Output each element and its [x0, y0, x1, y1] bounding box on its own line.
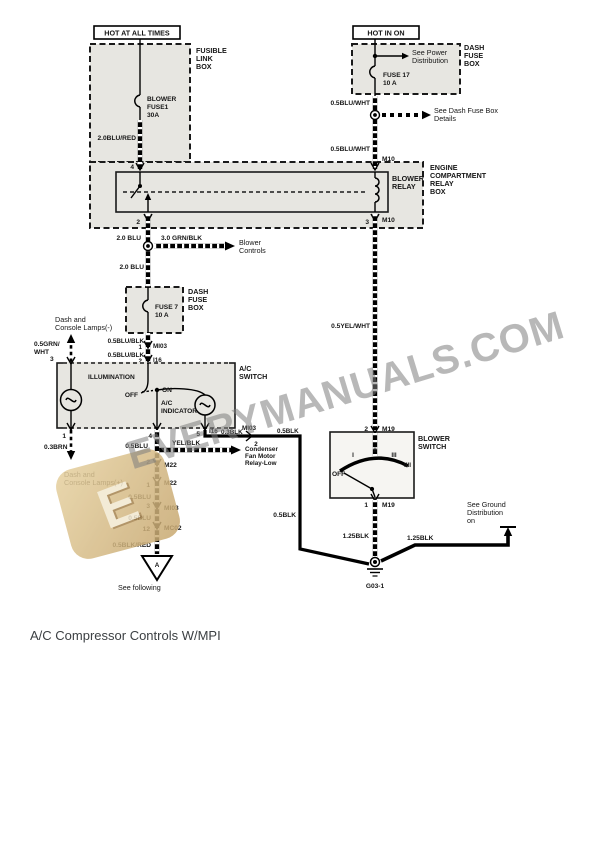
- wire-label-blu-b: 0.5BLU: [128, 494, 151, 501]
- wiring-diagram-page: HOT AT ALL TIMES HOT IN ON FUSIBLE LINK …: [0, 0, 612, 866]
- diagram-caption: A/C Compressor Controls W/MPI: [30, 628, 221, 643]
- svg-text:RELAY: RELAY: [392, 182, 416, 191]
- conn-m22-a: M22: [164, 462, 177, 469]
- see-following-note: See following: [118, 583, 161, 592]
- conn-i16-bottom: I16: [209, 428, 218, 435]
- wire-label-blk03: 0.3BLK: [221, 429, 243, 436]
- blower-pos-1: I: [352, 452, 354, 459]
- wire-label-blk05-a: 0.5BLK: [277, 428, 299, 435]
- pin-m22-a: 2: [146, 459, 150, 466]
- pin-mc02: 12: [143, 526, 151, 533]
- conn-mi03-top: MI03: [153, 343, 167, 350]
- wire-label-125blk-right: 1.25BLK: [407, 535, 434, 542]
- svg-text:BOX: BOX: [188, 303, 204, 312]
- pin-acsw-illum-out: 1: [62, 433, 66, 440]
- illumination-label: ILLUMINATION: [88, 374, 135, 381]
- blower-off-label: OFF: [332, 471, 345, 478]
- wire-label-blu-red: 2.0BLU/RED: [98, 135, 137, 142]
- svg-text:10 A: 10 A: [383, 80, 397, 87]
- lamps-plus-arrow: [67, 451, 75, 460]
- wire-label-brn: 0.3BRN: [44, 444, 68, 451]
- wire-label-yel-wht: 0.5YEL/WHT: [331, 323, 370, 330]
- conn-mi03-mid: MI03: [164, 505, 179, 512]
- svg-text:SWITCH: SWITCH: [418, 442, 446, 451]
- hot-at-all-times-header: HOT AT ALL TIMES: [94, 26, 180, 39]
- blower-pos-3: III: [391, 452, 396, 459]
- pin-acsw-illum-in: 3: [50, 356, 54, 363]
- fuse17-label: FUSE 17: [383, 72, 410, 79]
- wire-label-20blu-lower: 2.0 BLU: [119, 264, 144, 271]
- svg-text:BOX: BOX: [464, 59, 480, 68]
- svg-text:10 A: 10 A: [155, 312, 169, 319]
- conn-mi03-cond: MI03: [242, 425, 256, 432]
- wire-label-blu-wht-lower: 0.5BLU/WHT: [330, 146, 370, 153]
- svg-text:Details: Details: [434, 114, 456, 123]
- relay-pin3: 3: [365, 219, 369, 226]
- pin-acsw-sw-out: 4: [148, 433, 152, 440]
- wire-label-125blk-left: 1.25BLK: [343, 533, 370, 540]
- wire-label-grn-wht: 0.5GRN/: [34, 341, 60, 348]
- svg-text:Console Lamps(-): Console Lamps(-): [55, 323, 112, 332]
- pin-blower-in: 2: [364, 426, 368, 433]
- ac-off-label: OFF: [125, 392, 138, 399]
- conn-mc02: MC02: [164, 525, 182, 532]
- ref-a-label: A: [155, 562, 160, 569]
- see-ground-arrow: [504, 527, 512, 536]
- blower-pos-2: II: [373, 447, 377, 454]
- wire-label-blu-c: 0.5BLU: [128, 515, 151, 522]
- wiring-diagram: HOT AT ALL TIMES HOT IN ON FUSIBLE LINK …: [0, 0, 612, 866]
- wire-label-yel-blk: YEL/BLK: [172, 440, 200, 447]
- svg-text:Relay-Low: Relay-Low: [245, 460, 277, 467]
- svg-text:SWITCH: SWITCH: [239, 372, 267, 381]
- relay-m10-bot: M10: [382, 217, 395, 224]
- conn-m22-b: M22: [164, 480, 177, 487]
- svg-text:BOX: BOX: [430, 187, 446, 196]
- svg-text:Controls: Controls: [239, 246, 266, 255]
- hot-in-on-label: HOT IN ON: [367, 29, 404, 38]
- svg-text:Distribution: Distribution: [412, 56, 448, 65]
- svg-text:BOX: BOX: [196, 62, 212, 71]
- hot-at-all-times-label: HOT AT ALL TIMES: [104, 29, 170, 38]
- fuse7-label: FUSE 7: [155, 304, 178, 311]
- svg-text:30A: 30A: [147, 112, 159, 119]
- pin-mi03-mid: 3: [146, 503, 150, 510]
- wire-label-grn-blk: 3.0 GRN/BLK: [161, 235, 202, 242]
- wire-label-blk05-b: 0.5BLK: [273, 512, 296, 519]
- ac-indicator-label: A/C: [161, 400, 173, 407]
- ac-on-label: ON: [162, 387, 172, 394]
- blower-fuse-label: BLOWER: [147, 96, 177, 103]
- svg-text:FUSE1: FUSE1: [147, 104, 169, 111]
- svg-text:WHT: WHT: [34, 349, 49, 356]
- conn-m19-top: M19: [382, 426, 395, 433]
- blower-pos-4: IIII: [404, 462, 411, 469]
- pin-acsw-ind-out: 5: [196, 431, 200, 438]
- ground-id-label: G03-1: [366, 583, 385, 590]
- pin-blower-out: 1: [364, 502, 368, 509]
- svg-text:Fan Motor: Fan Motor: [245, 453, 276, 460]
- wire-lamps-plus: [67, 430, 75, 460]
- wire-label-blu-a: 0.5BLU: [125, 443, 148, 450]
- svg-text:on: on: [467, 516, 475, 525]
- hot-in-on-header: HOT IN ON: [353, 26, 419, 39]
- relay-pin2: 2: [136, 219, 140, 226]
- see-dash-fuse-arrow: [422, 111, 431, 119]
- condenser-arrow: [231, 446, 241, 455]
- pin-fuse7-out: 1: [138, 344, 142, 351]
- pin-m22-b: 1: [146, 482, 150, 489]
- lamps-minus-arrow: [67, 334, 75, 343]
- wire-label-blu-wht-upper: 0.5BLU/WHT: [330, 100, 370, 107]
- svg-text:Console Lamps(+): Console Lamps(+): [64, 478, 123, 487]
- relay-pin4: 4: [130, 164, 134, 171]
- wire-label-blk-red: 0.5BLK/RED: [113, 542, 152, 549]
- relay-m10-top: M10: [382, 156, 395, 163]
- junction-dash-fuse: [371, 111, 432, 120]
- svg-text:INDICATOR: INDICATOR: [161, 408, 197, 415]
- blower-controls-arrow: [225, 242, 235, 251]
- conn-m19-bot: M19: [382, 502, 395, 509]
- wire-label-20blu-upper: 2.0 BLU: [116, 235, 141, 242]
- condenser-note: Condenser: [245, 446, 278, 453]
